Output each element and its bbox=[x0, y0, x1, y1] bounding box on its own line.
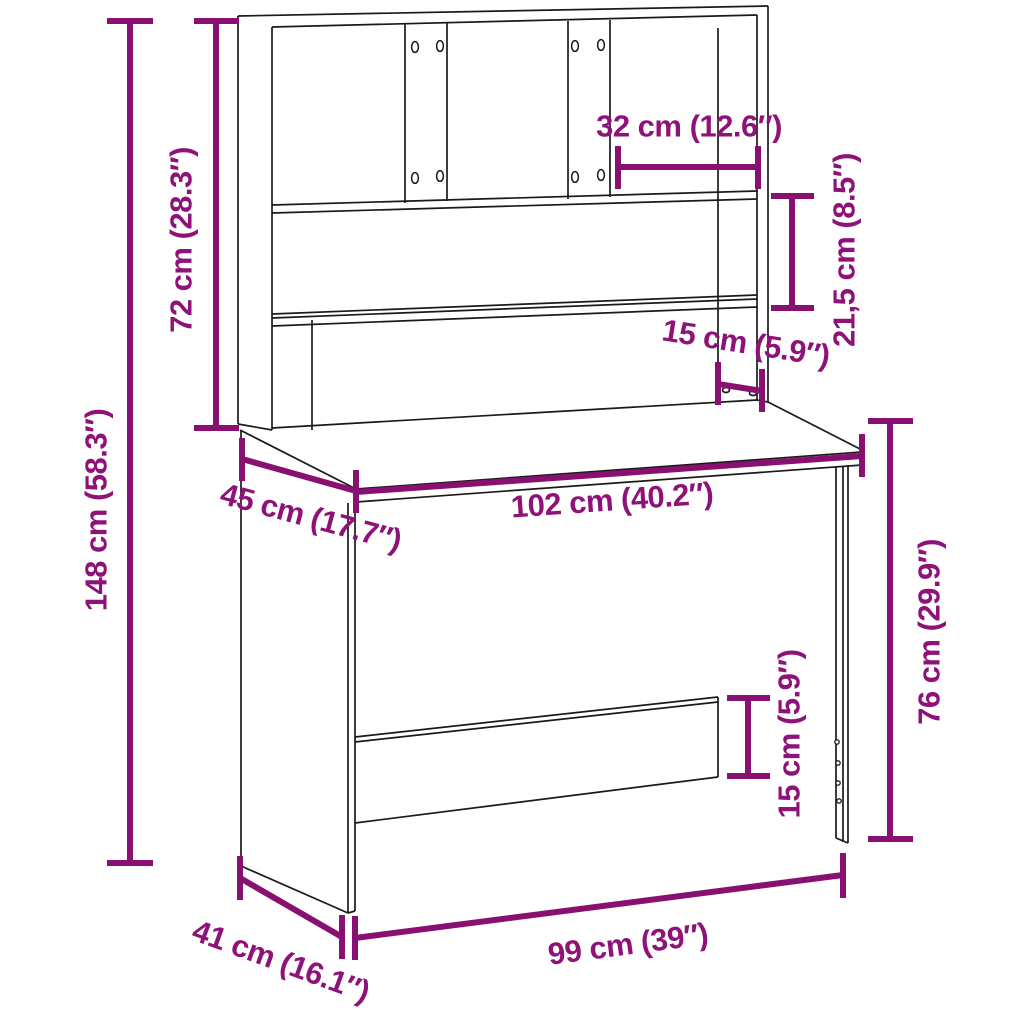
dim-shelf-spacing: 21,5 cm (8.5″) bbox=[771, 153, 862, 347]
dimension-label-desktop-width: 102 cm (40.2″) bbox=[510, 475, 715, 524]
dimension-label-desk-height: 76 cm (29.9″) bbox=[912, 539, 947, 725]
back-panel-bottom-edge bbox=[355, 777, 718, 823]
dimension-label-compartment-width: 32 cm (12.6″) bbox=[596, 109, 782, 144]
cubby-shelf-top-edge bbox=[272, 191, 757, 205]
dim-hutch-lower-depth: 15 cm (5.9″) bbox=[660, 312, 833, 412]
screw-hole-icon bbox=[835, 740, 839, 744]
dimension-label-hutch-height: 72 cm (28.3″) bbox=[164, 147, 199, 333]
dimension-label-base-depth: 41 cm (16.1″) bbox=[188, 913, 375, 1009]
desk-line-art bbox=[240, 388, 862, 914]
screw-hole-icon bbox=[836, 781, 840, 785]
divider-holes bbox=[412, 40, 605, 184]
middle-shelf-top-edge bbox=[272, 295, 757, 314]
desktop-left-edge bbox=[240, 430, 356, 489]
dim-desktop-depth: 45 cm (17.7″) bbox=[217, 438, 406, 558]
screw-hole-icon bbox=[412, 42, 419, 53]
dim-back-panel-height: 15 cm (5.9″) bbox=[727, 649, 807, 818]
dim-desktop-width: 102 cm (40.2″) bbox=[356, 434, 862, 525]
back-panel-top-edge bbox=[355, 697, 718, 737]
dimension-annotations: 148 cm (58.3″) 72 cm (28.3″) 32 cm (12.6… bbox=[79, 21, 947, 1009]
screw-hole-icon bbox=[836, 761, 840, 765]
hutch-left-panel-bottom bbox=[238, 424, 272, 430]
cubby-shelf-bottom-edge bbox=[272, 199, 757, 213]
screw-hole-icon bbox=[598, 170, 605, 181]
right-leg-bottom-edge bbox=[836, 838, 848, 843]
hutch-line-art bbox=[238, 6, 768, 430]
dim-base-depth: 41 cm (16.1″) bbox=[188, 856, 375, 1009]
dim-hutch-height: 72 cm (28.3″) bbox=[164, 21, 240, 428]
dim-total-height: 148 cm (58.3″) bbox=[79, 21, 154, 863]
dimension-label-base-width: 99 cm (39″) bbox=[546, 916, 710, 972]
left-leg-front-bottom bbox=[348, 911, 355, 913]
dimension-label-shelf-spacing: 21,5 cm (8.5″) bbox=[827, 153, 862, 347]
hutch-top-front-edge bbox=[272, 15, 757, 27]
dimension-diagram: 148 cm (58.3″) 72 cm (28.3″) 32 cm (12.6… bbox=[0, 0, 1024, 1024]
diagram-canvas: 148 cm (58.3″) 72 cm (28.3″) 32 cm (12.6… bbox=[0, 0, 1024, 1024]
desktop-back-edge bbox=[272, 400, 757, 428]
dimension-line bbox=[355, 875, 843, 938]
dimension-label-back-panel-height: 15 cm (5.9″) bbox=[772, 649, 807, 818]
dimension-label-hutch-lower-depth: 15 cm (5.9″) bbox=[660, 312, 833, 373]
screw-hole-icon bbox=[572, 172, 579, 183]
screw-hole-icon bbox=[598, 40, 605, 51]
dim-compartment-width: 32 cm (12.6″) bbox=[596, 109, 782, 190]
screw-hole-icon bbox=[437, 41, 444, 52]
hutch-top-back-edge bbox=[238, 6, 768, 16]
screw-hole-icon bbox=[437, 171, 444, 182]
back-panel-top-front bbox=[355, 702, 718, 742]
dimension-label-total-height: 148 cm (58.3″) bbox=[79, 409, 114, 612]
dimension-line bbox=[240, 878, 342, 937]
screw-hole-icon bbox=[837, 799, 841, 803]
dim-desk-height: 76 cm (29.9″) bbox=[868, 421, 947, 839]
dim-base-width: 99 cm (39″) bbox=[355, 853, 843, 972]
screw-hole-icon bbox=[572, 41, 579, 52]
screw-hole-icon bbox=[412, 173, 419, 184]
desktop-right-edge bbox=[768, 402, 862, 450]
